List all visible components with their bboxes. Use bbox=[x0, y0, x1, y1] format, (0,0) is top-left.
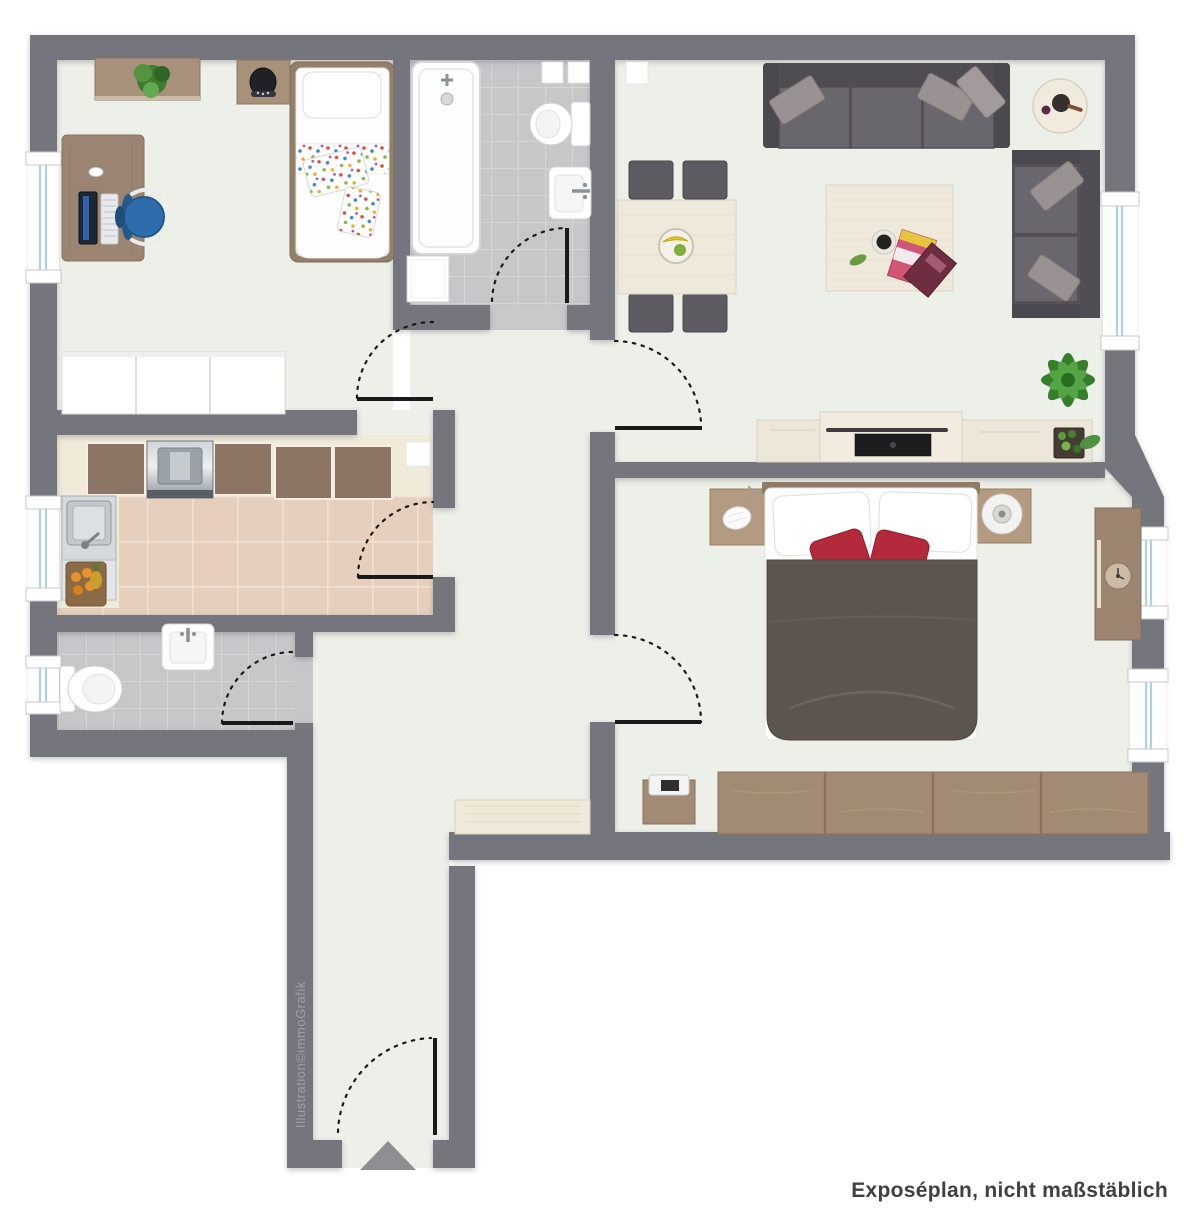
soundbar bbox=[826, 428, 948, 432]
mouse bbox=[89, 168, 103, 177]
bathtub bbox=[412, 62, 480, 254]
counter-row bbox=[87, 441, 392, 499]
credit-text: Illustration©immoGrafik bbox=[293, 981, 308, 1128]
bathroom-sink bbox=[549, 167, 591, 219]
bathroom-toilet bbox=[530, 102, 590, 146]
tv-sideboard bbox=[757, 412, 1103, 462]
children-wardrobe bbox=[62, 352, 285, 414]
dining-chair bbox=[683, 294, 727, 332]
wall-niche bbox=[626, 62, 648, 84]
fruit-basket bbox=[66, 562, 106, 606]
floorplan-canvas: Illustration©immoGrafik Exposéplan, nich… bbox=[0, 0, 1200, 1224]
round-side-table bbox=[1033, 79, 1087, 133]
coffee-cup bbox=[877, 235, 892, 250]
duvet bbox=[767, 560, 977, 740]
corner-sofa bbox=[1012, 150, 1100, 318]
dining-chair bbox=[629, 161, 673, 199]
coffee-table bbox=[826, 185, 956, 297]
shoe-cabinet bbox=[643, 775, 695, 824]
round-tray bbox=[982, 494, 1022, 534]
children-room-window bbox=[26, 152, 61, 283]
washing-machine bbox=[407, 256, 449, 302]
single-bed bbox=[290, 62, 394, 262]
wall-niche bbox=[406, 442, 430, 466]
bedroom-window-2 bbox=[1128, 669, 1168, 762]
fruit-bowl bbox=[659, 229, 693, 263]
cabinet-front bbox=[214, 443, 272, 495]
wall-niche bbox=[542, 62, 563, 83]
drain bbox=[441, 93, 453, 105]
wall-niche bbox=[568, 62, 589, 83]
cabinet-front bbox=[275, 446, 332, 499]
hallway-floor bbox=[410, 330, 590, 410]
bedroom-wardrobe bbox=[718, 772, 1148, 834]
cabinet-front bbox=[87, 443, 145, 495]
wc-window bbox=[26, 656, 61, 714]
wc-toilet bbox=[60, 666, 122, 712]
dining-chair bbox=[629, 294, 673, 332]
wall-cabinet bbox=[1095, 508, 1141, 640]
pillow bbox=[303, 72, 381, 118]
cabinet-front bbox=[334, 446, 392, 499]
floorplan-page: Illustration©immoGrafik Exposéplan, nich… bbox=[0, 0, 1200, 1224]
large-sofa bbox=[763, 63, 1010, 148]
hallway-sideboard bbox=[455, 800, 590, 834]
kitchen-window bbox=[26, 496, 61, 601]
stove bbox=[147, 441, 213, 498]
wc-sink bbox=[162, 624, 214, 670]
potted-plant bbox=[1041, 353, 1095, 407]
living-room-window bbox=[1101, 192, 1139, 350]
disclaimer-text: Exposéplan, nicht maßstäblich bbox=[851, 1179, 1168, 1202]
double-bed bbox=[762, 482, 980, 740]
dining-chair bbox=[683, 161, 727, 199]
beanie bbox=[250, 68, 276, 97]
